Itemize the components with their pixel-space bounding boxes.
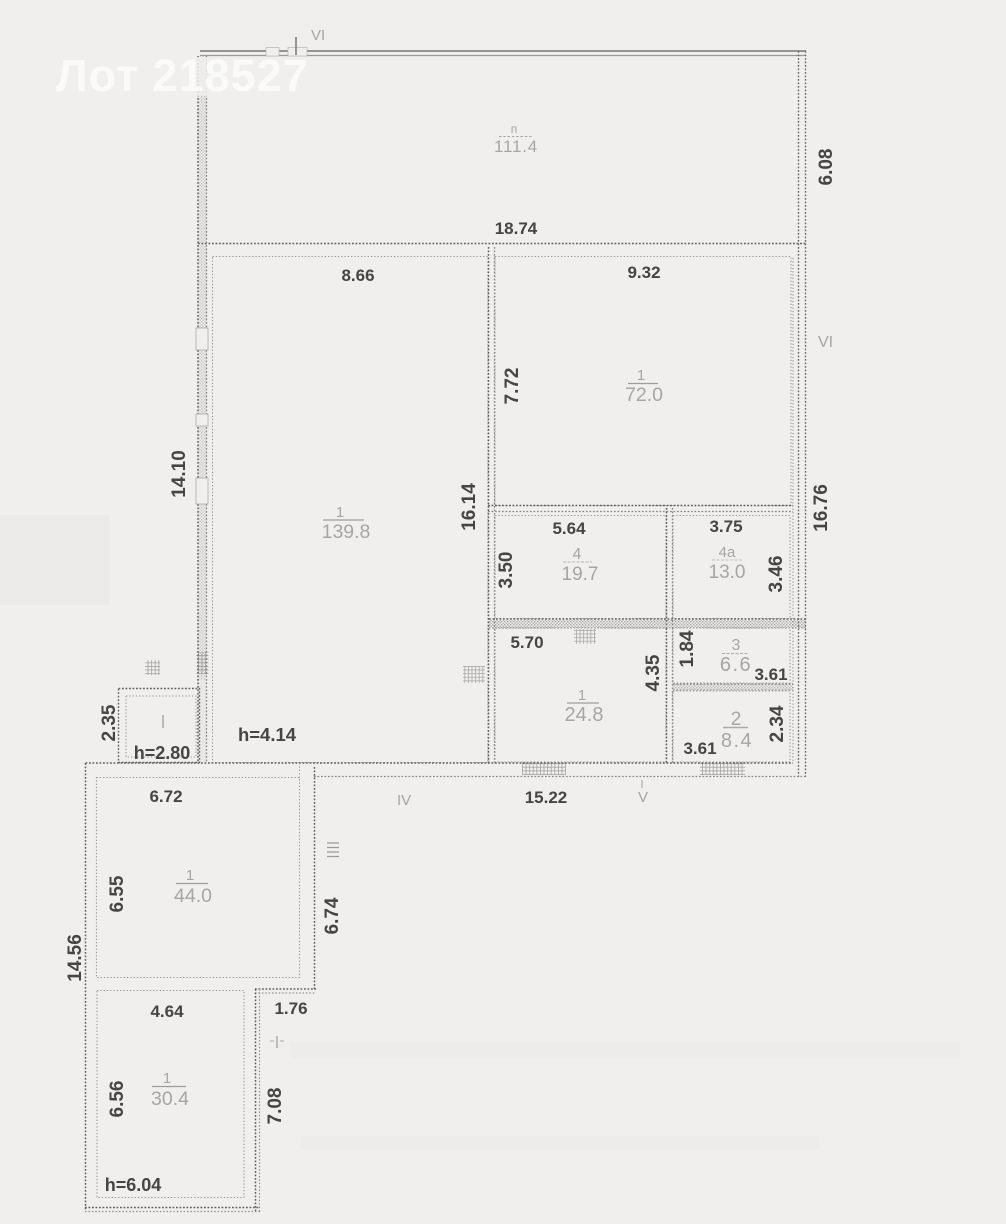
svg-text:7.72: 7.72 [502,368,523,405]
svg-text:h=4.14: h=4.14 [238,724,297,745]
svg-text:2.34: 2.34 [767,705,788,742]
svg-text:6.55: 6.55 [107,875,128,912]
svg-text:3.50: 3.50 [496,552,517,589]
svg-text:VI: VI [311,27,325,44]
svg-text:3: 3 [732,637,741,654]
svg-text:24.8: 24.8 [565,704,604,726]
svg-text:1: 1 [578,687,586,704]
svg-text:3.61: 3.61 [683,739,716,758]
svg-text:15.22: 15.22 [525,788,568,807]
svg-text:4a: 4a [719,544,736,561]
svg-text:7.08: 7.08 [265,1088,286,1125]
svg-text:5.64: 5.64 [552,519,586,538]
svg-text:5.70: 5.70 [510,633,543,652]
svg-text:14.10: 14.10 [169,450,190,498]
svg-text:16.76: 16.76 [811,484,832,532]
svg-text:3.75: 3.75 [709,517,742,536]
svg-text:9.32: 9.32 [627,263,660,282]
svg-text:8.66: 8.66 [341,266,374,285]
svg-text:16.14: 16.14 [459,483,480,531]
svg-text:44.0: 44.0 [174,885,212,907]
svg-text:18.74: 18.74 [495,219,538,238]
svg-text:6.56: 6.56 [107,1081,128,1118]
svg-text:6.08: 6.08 [816,149,837,186]
svg-text:1: 1 [163,1070,171,1087]
svg-text:72.0: 72.0 [625,384,663,406]
svg-text:139.8: 139.8 [322,521,371,543]
svg-text:3.46: 3.46 [766,556,787,593]
svg-text:13.0: 13.0 [709,562,746,583]
svg-text:2.35: 2.35 [99,704,120,741]
svg-text:Лот 218527: Лот 218527 [56,50,309,101]
svg-text:14.56: 14.56 [65,934,86,982]
svg-text:1: 1 [336,504,344,521]
svg-text:3.61: 3.61 [754,665,787,684]
svg-text:VI: VI [818,334,833,351]
svg-text:8.4: 8.4 [721,730,753,752]
svg-text:1: 1 [186,867,194,884]
svg-text:111.4: 111.4 [494,137,538,156]
svg-text:1: 1 [637,367,645,384]
svg-text:6.6: 6.6 [720,654,752,676]
svg-text:h=6.04: h=6.04 [105,1175,162,1195]
svg-text:IV: IV [397,792,411,809]
svg-text:6.72: 6.72 [149,787,182,806]
svg-text:1.84: 1.84 [677,630,698,667]
svg-text:h=2.80: h=2.80 [134,743,191,763]
svg-text:6.74: 6.74 [322,897,343,934]
svg-text:19.7: 19.7 [562,564,599,585]
svg-text:4: 4 [573,546,582,563]
svg-text:30.4: 30.4 [151,1088,189,1110]
svg-text:п: п [511,122,518,136]
svg-text:4.35: 4.35 [643,654,664,691]
svg-text:4.64: 4.64 [150,1002,184,1021]
svg-text:V: V [638,789,648,806]
svg-text:1.76: 1.76 [274,999,307,1018]
